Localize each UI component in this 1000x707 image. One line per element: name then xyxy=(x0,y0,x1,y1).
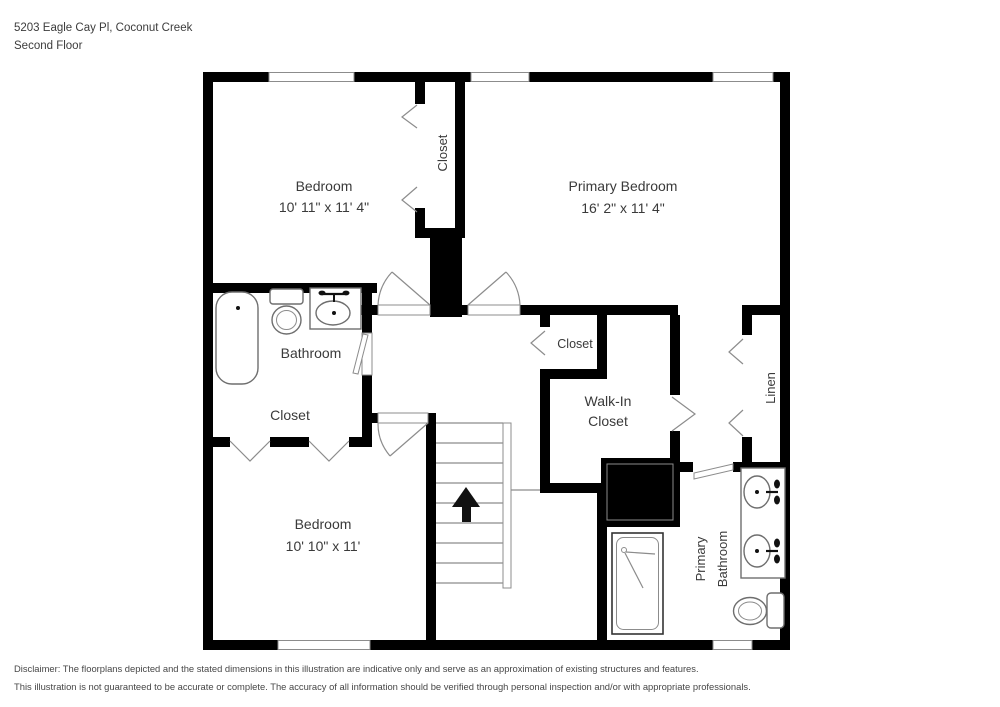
room-label-bedroom-bottom: Bedroom xyxy=(295,516,352,532)
chevron-closet-mid xyxy=(531,331,545,355)
staircase xyxy=(436,423,540,588)
door-threshold-bedroom-top xyxy=(378,305,430,315)
window-top-primary-1 xyxy=(471,73,529,82)
door-leaf-bedroom-top xyxy=(392,272,430,305)
room-label-linen: Linen xyxy=(763,372,778,404)
stair-railing xyxy=(503,423,511,588)
door-leaf-bedroom-bottom xyxy=(390,423,428,456)
bathroom-fixtures xyxy=(216,288,361,384)
door-threshold-bedroom-bottom xyxy=(378,413,428,423)
room-label-bathroom: Bathroom xyxy=(281,345,342,361)
door-arc-bedroom-bottom xyxy=(378,423,390,456)
window-bottom-bathroom xyxy=(713,641,752,650)
room-label-primary-bathroom-1: Primary xyxy=(693,536,708,581)
page-header: 5203 Eagle Cay Pl, Coconut Creek Second … xyxy=(14,22,193,52)
chevron-closet-top-1 xyxy=(402,105,417,128)
floor-subtitle: Second Floor xyxy=(14,40,83,52)
window-top-bedroom xyxy=(269,73,354,82)
door-leaf-primary-bathroom xyxy=(694,464,733,479)
room-dims-primary-bedroom: 16' 2" x 11' 4" xyxy=(581,200,665,216)
chevron-closet-top-2 xyxy=(402,187,417,212)
window-bottom-bedroom xyxy=(278,641,370,650)
toilet-fixture-primary xyxy=(734,593,785,628)
address-title: 5203 Eagle Cay Pl, Coconut Creek xyxy=(14,22,193,34)
room-dims-bedroom-top: 10' 11" x 11' 4" xyxy=(279,199,369,215)
chase-block xyxy=(601,458,680,527)
room-label-walk-in-closet-1: Walk-In xyxy=(585,393,632,409)
room-label-closet-left: Closet xyxy=(270,407,310,423)
disclaimer-line-2: This illustration is not guaranteed to b… xyxy=(14,681,751,692)
toilet-fixture xyxy=(270,289,303,334)
chevron-walk-in-closet xyxy=(672,397,695,431)
door-arc-primary-bedroom xyxy=(506,272,520,305)
room-dims-bedroom-bottom: 10' 10" x 11' xyxy=(286,538,361,554)
center-pillar xyxy=(430,232,462,317)
room-label-bedroom-top: Bedroom xyxy=(296,178,353,194)
bathtub-fixture xyxy=(216,292,258,384)
stairs-up-arrow xyxy=(452,487,480,507)
room-label-primary-bathroom-2: Bathroom xyxy=(715,531,730,587)
double-vanity-fixture xyxy=(741,468,785,578)
room-label-closet-top: Closet xyxy=(435,134,450,171)
room-labels: Bedroom 10' 11" x 11' 4" Closet Primary … xyxy=(270,134,778,587)
door-arc-bedroom-top xyxy=(378,272,392,305)
room-label-closet-mid: Closet xyxy=(557,337,593,351)
door-threshold-primary-bedroom xyxy=(468,305,520,315)
disclaimer: Disclaimer: The floorplans depicted and … xyxy=(14,663,751,692)
room-label-walk-in-closet-2: Closet xyxy=(588,413,628,429)
door-openings xyxy=(362,305,520,423)
shower-fixture xyxy=(612,533,663,634)
door-leaf-primary-bedroom xyxy=(468,272,506,305)
room-label-primary-bedroom: Primary Bedroom xyxy=(569,178,678,194)
chevron-linen-1 xyxy=(729,339,743,364)
chevron-closet-left-1 xyxy=(230,441,270,461)
disclaimer-line-1: Disclaimer: The floorplans depicted and … xyxy=(14,663,699,674)
window-top-primary-2 xyxy=(713,73,773,82)
chevron-linen-2 xyxy=(729,410,743,436)
floor-plan-canvas: 5203 Eagle Cay Pl, Coconut Creek Second … xyxy=(0,0,1000,707)
chevron-closet-left-2 xyxy=(309,441,349,461)
sink-vanity-fixture xyxy=(310,288,361,329)
